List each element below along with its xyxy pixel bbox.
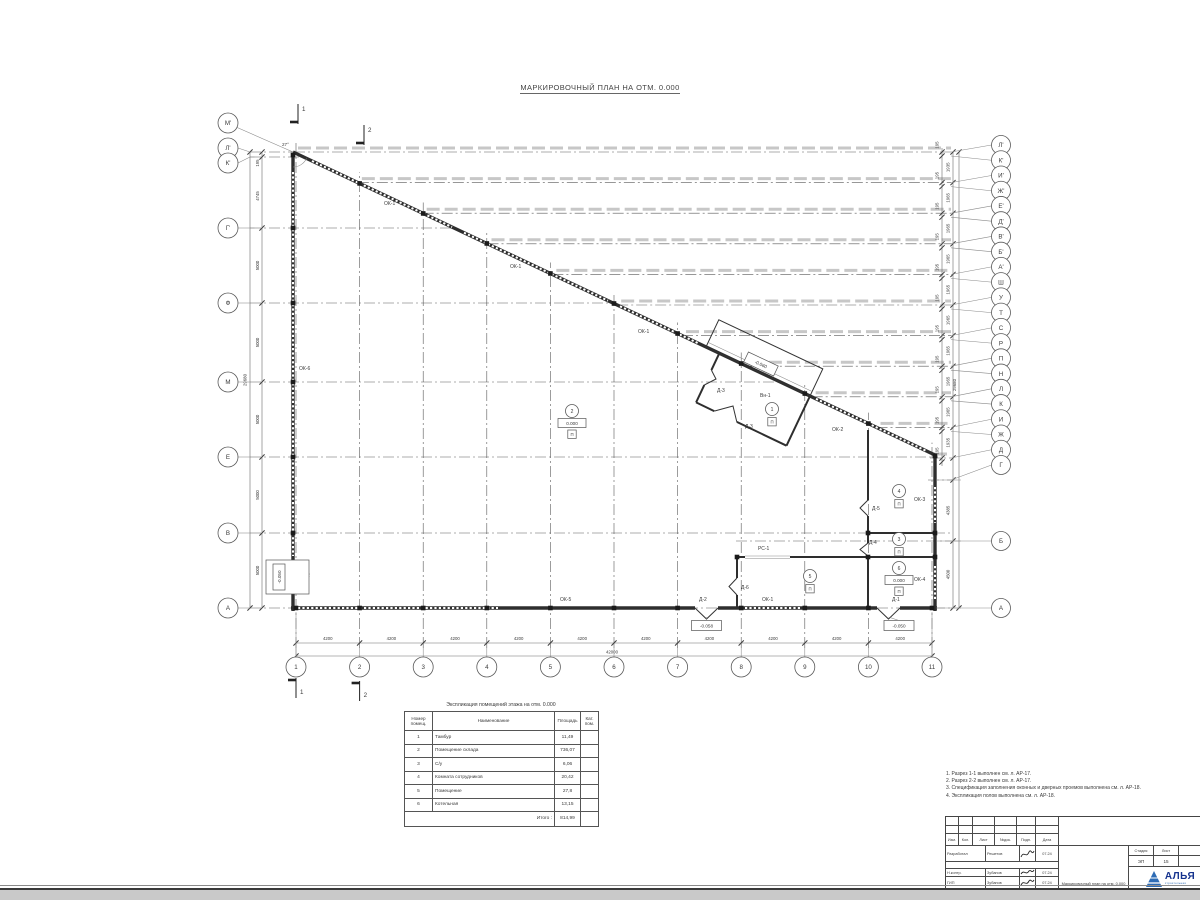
axis-leader [951,175,992,182]
column-square [933,555,938,560]
total-label: Итого : [405,812,555,827]
section-label: 2 [364,692,368,699]
axis-label-right: Б [999,538,1003,545]
company-logo: АЛЬЯ строительная [1129,867,1200,890]
tb-sheet-label: Лист [1154,846,1179,856]
axis-label-right: Н [999,371,1003,378]
elevation-leader [889,617,900,621]
axis-leader [951,419,992,427]
floor-type: П [770,420,773,425]
axis-label-bottom: 3 [421,664,425,671]
dim-value-total: 42000 [606,650,619,655]
column-square [421,606,426,611]
door-symbol [860,543,868,556]
axis-label-right: Ж' [998,188,1005,195]
col-header-name: Наименование [433,712,555,731]
door-symbol [860,500,868,516]
floor-plan: -0.0604200420042004200420042004200420042… [0,0,1200,900]
axis-leader [951,248,992,252]
opening-mark: ОК-4 [914,577,925,583]
dim-value-total: 29680 [243,373,248,386]
axis-leader [951,370,992,373]
axis-label-left: М' [225,120,231,127]
table-row: 5Помещение27,8 [405,785,599,799]
door-symbol [877,608,900,619]
table-row: 6Котельная13,15 [405,798,599,812]
cell-cat [581,758,599,772]
column-square [548,606,553,611]
vestibule-wall [787,396,811,446]
dim-value: 5000 [255,260,260,270]
floor-type: П [808,587,811,592]
cell-number: 3 [405,758,433,772]
dim-value: 4200 [387,636,397,641]
axis-label-right: К' [999,157,1004,164]
axis-label-right: Л [999,386,1003,393]
entrance-elevation: -0.050 [273,564,285,590]
room-explication: Экспликация помещений этажа на отм. 0.00… [404,702,598,827]
door-symbol [704,370,716,385]
sheet-frame-line [0,885,1200,886]
axis-leader [951,389,992,397]
column-square [291,301,296,306]
axis-label-right: А' [998,264,1003,271]
floor-type: П [897,502,900,507]
room-number: 5 [809,574,812,580]
dim-value-total: 29680 [952,378,957,391]
dim-value: 195 [935,141,940,149]
opening-mark: ОК-1 [510,264,521,270]
explication-table: Номер помещ. Наименование Площадь Кат. п… [404,711,599,827]
axis-leader [951,206,992,213]
col-header-cat: Кат. пом. [581,712,599,731]
column-square [930,606,935,611]
opening-mark: ОК-1 [384,201,395,207]
dim-value: 4745 [255,191,260,201]
section-label: 1 [300,689,304,696]
dim-value: 195 [935,202,940,210]
axis-label-bottom: 4 [485,664,489,671]
cell-number: 6 [405,798,433,812]
column-square [291,153,296,158]
cell-cat [581,771,599,785]
dim-value: 1935 [946,437,951,447]
dim-value: 4385 [946,505,951,515]
elevation-value: -0.050 [277,570,282,583]
axis-leader [951,340,992,343]
axis-leader [236,127,293,152]
signature [1020,848,1035,860]
column-square [291,531,296,536]
note-line: 3. Спецификация заполнения оконных и две… [946,785,1141,792]
table-row: 3С/у6,06 [405,758,599,772]
dim-value: 195 [255,159,260,167]
title-block: Изм. Кол. Лист №док. Подп. Дата Разработ… [945,816,1200,889]
axis-label-left: Е [226,454,230,461]
col-header-number: Номер помещ. [405,712,433,731]
cell-area: 27,8 [555,785,581,799]
axis-label-right: Ж [998,432,1004,439]
tb-date: 07.24 [1036,846,1059,862]
column-square [612,301,617,306]
door-symbol [729,578,737,595]
axis-leader [951,278,992,282]
column-square [866,555,871,560]
cell-cat [581,798,599,812]
table-total-row: Итого : 814,99 [405,812,599,827]
dim-value: 1935 [946,162,951,172]
column-square [291,380,296,385]
axis-label-right: Л' [998,142,1003,149]
note-line: 4. Экспликация полов выполнена см. л. АР… [946,793,1141,800]
axis-leader [951,187,992,191]
dim-value: 1965 [946,315,951,325]
axis-label-right: Т [999,310,1003,317]
dim-value: 5000 [255,490,260,500]
drawing-sheet: { "title": "МАРКИРОВОЧНЫЙ ПЛАН НА ОТМ. 0… [0,0,1200,900]
dim-value: 195 [935,324,940,332]
dim-value: 195 [935,447,940,455]
cell-name: С/у [433,758,555,772]
dim-value: 195 [935,355,940,363]
total-area: 814,99 [555,812,581,827]
column-square [291,226,296,231]
note-line: 2. Разрез 2-2 выполнен см. л. АР-17. [946,778,1141,785]
dim-value: 4200 [514,636,524,641]
axis-label-right: В' [998,234,1003,241]
vestibule-wall [696,402,714,411]
column-square [866,606,871,611]
axis-label-left: М [225,379,230,386]
axis-label-left: В [226,530,230,537]
column-square [866,421,871,426]
axis-leader [951,309,992,313]
opening-mark: Д-6 [741,585,749,591]
room-number: 1 [771,407,774,413]
tb-date: 07.24 [1036,869,1059,877]
dim-value: 4200 [768,636,778,641]
dim-value: 5000 [255,337,260,347]
axis-label-right: Р [999,340,1003,347]
room-number: 6 [898,566,901,572]
tb-role: Н.контр. [946,869,986,877]
drawing-title: МАРКИРОВОЧНЫЙ ПЛАН НА ОТМ. 0.000 [0,83,1200,92]
opening-mark: Д-3 [717,388,725,394]
vestibule-wall [711,353,719,370]
axis-label-bottom: 9 [803,664,807,671]
angle-arc [293,158,307,167]
column-square [933,531,938,536]
axis-label-bottom: 11 [929,664,936,671]
cell-number: 2 [405,744,433,758]
room-number: 2 [571,409,574,415]
axis-label-right: Д' [998,218,1003,225]
tb-header-izm: Изм. [946,834,959,846]
dim-value: 195 [935,233,940,241]
floor-type: П [897,550,900,555]
angle-label: 27° [282,142,289,147]
column-square [485,241,490,246]
tb-role: Разработал [946,846,986,862]
logo-text: АЛЬЯ [1165,872,1195,881]
axis-label-bottom: 1 [294,664,298,671]
dim-value: 4200 [323,636,333,641]
axis-label-left: Г' [226,225,231,232]
axis-leader [951,217,992,221]
axis-leader [951,358,992,366]
column-square [803,391,808,396]
tb-header-kol: Кол. [959,834,973,846]
door-symbol [714,406,737,422]
axis-leader [951,236,992,243]
tb-header-doc: №док. [995,834,1017,846]
axis-leader [951,297,992,305]
cell-area: 20,42 [555,771,581,785]
column-square [675,606,680,611]
cell-cat [581,785,599,799]
dim-value: 1965 [946,346,951,356]
tb-doc-title: Маркировочный план на отм. 0.000 [1059,846,1129,890]
dim-value: 4500 [946,569,951,579]
axis-label-right: С [999,325,1004,332]
dim-value: 5000 [255,565,260,575]
dim-value: 4200 [577,636,587,641]
opening-mark: ОК-2 [832,427,843,433]
opening-mark: Д-1 [892,597,900,603]
dim-value: 195 [935,416,940,424]
axis-label-bottom: 2 [358,664,362,671]
axis-leader [238,148,250,152]
elevation-frame [266,560,309,594]
column-square [675,331,680,336]
cell-name: Тамбур [433,731,555,745]
opening-mark: Д-5 [872,506,880,512]
dim-value: 4200 [895,636,905,641]
axis-leader [238,157,250,163]
axis-label-bottom: 8 [739,664,743,671]
cell-name: Котельная [433,798,555,812]
dim-value: 195 [935,294,940,302]
note-line: 1. Разрез 1-1 выполнен см. л. АР-17. [946,771,1141,778]
column-square [548,271,553,276]
axis-label-bottom: 7 [676,664,680,671]
opening-mark: Д-4 [869,540,877,546]
axis-leader [951,431,992,434]
tb-header-date: Дата [1036,834,1059,846]
column-square [357,181,362,186]
tb-sheet-value: 15 [1154,856,1179,867]
cell-number: 1 [405,731,433,745]
dim-value: 1965 [946,376,951,386]
table-row: 1Тамбур11,49 [405,731,599,745]
dim-value: 1965 [946,193,951,203]
opening-mark: Вн-1 [760,393,771,399]
axis-leader [951,401,992,404]
table-row: 4Комната сотрудников20,42 [405,771,599,785]
column-square [739,606,744,611]
cell-area: 13,15 [555,798,581,812]
dim-value: 4200 [641,636,651,641]
signature [1020,878,1035,888]
column-square [803,606,808,611]
cell-number: 4 [405,771,433,785]
opening-mark: ОК-1 [638,329,649,335]
tb-header-sign: Подп. [1017,834,1036,846]
axis-label-bottom: 10 [865,664,872,671]
tb-name: Зубанов [986,869,1020,877]
axis-label-right: Ш [998,279,1004,286]
axis-label-right: И' [998,173,1004,180]
room-elevation: 0.000 [893,578,905,583]
elevation-value: -0.058 [700,624,713,629]
axis-leader [951,465,992,480]
axis-leader [951,267,992,274]
column-square [612,606,617,611]
dim-value: 1965 [946,223,951,233]
floor-type: П [897,589,900,594]
axis-label-left: К' [226,160,231,167]
cell-cat [581,744,599,758]
column-square [739,361,744,366]
dim-value: 5000 [255,414,260,424]
axis-label-right: П [999,356,1003,363]
dim-value: 195 [935,263,940,271]
column-square [294,606,299,611]
dim-value: 195 [935,386,940,394]
dim-value: 1965 [946,254,951,264]
tb-header-list: Лист [973,834,995,846]
page-background-strip [0,890,1200,900]
axis-label-bottom: 6 [612,664,616,671]
column-square [291,455,296,460]
axis-label-right: Б' [998,249,1003,256]
axis-leader [951,328,992,336]
cell-name: Помещение [433,785,555,799]
column-square [866,531,871,536]
cell-cat [581,731,599,745]
column-square [421,211,426,216]
room-number: 4 [898,489,901,495]
dim-value: 4200 [450,636,460,641]
column-square [735,555,740,560]
axis-label-left: Ф [226,300,231,307]
vestibule-wall [696,385,704,402]
opening-mark: ОК-6 [299,366,310,372]
signature [1020,869,1035,876]
opening-mark: ОК-1 [762,597,773,603]
axis-leader [951,156,992,160]
table-row: 2Помещение склада736,07 [405,744,599,758]
cell-name: Помещение склада [433,744,555,758]
axis-label-right: Е' [998,203,1003,210]
floor-type: П [570,432,573,437]
axis-leader [951,450,992,458]
cell-number: 5 [405,785,433,799]
opening-mark: ОК-3 [914,497,925,503]
room-number: 3 [898,537,901,543]
tb-name: Решетов [986,846,1020,862]
axis-label-right: И [999,416,1003,423]
dim-value: 4200 [705,636,715,641]
cell-name: Комната сотрудников [433,771,555,785]
dim-value: 195 [935,171,940,179]
opening-mark: Д-2 [699,597,707,603]
axis-label-right: К [999,401,1003,408]
opening-mark: Д-3 [745,424,753,430]
cell-area: 11,49 [555,731,581,745]
column-square [357,606,362,611]
cell-area: 6,06 [555,758,581,772]
opening-mark: ОК-5 [560,597,571,603]
axis-leader [951,145,992,152]
dim-value: 1965 [946,284,951,294]
opening-mark: РС-1 [758,546,770,552]
tb-stage-value: ЭП [1129,856,1154,867]
tb-stage-label: Стадия [1129,846,1154,856]
dim-value: 1965 [946,407,951,417]
col-header-area: Площадь [555,712,581,731]
elevation-value: -0.050 [892,624,905,629]
axis-label-bottom: 5 [549,664,553,671]
section-label: 2 [368,127,372,134]
section-label: 1 [302,106,306,113]
cell-area: 736,07 [555,744,581,758]
axis-label-right: У [999,295,1003,302]
room-elevation: 0.000 [566,421,578,426]
axis-label-left: Л' [225,145,230,152]
explication-title: Экспликация помещений этажа на отм. 0.00… [404,702,598,708]
dim-value: 4200 [832,636,842,641]
general-notes: 1. Разрез 1-1 выполнен см. л. АР-17. 2. … [946,771,1141,800]
column-square [485,606,490,611]
